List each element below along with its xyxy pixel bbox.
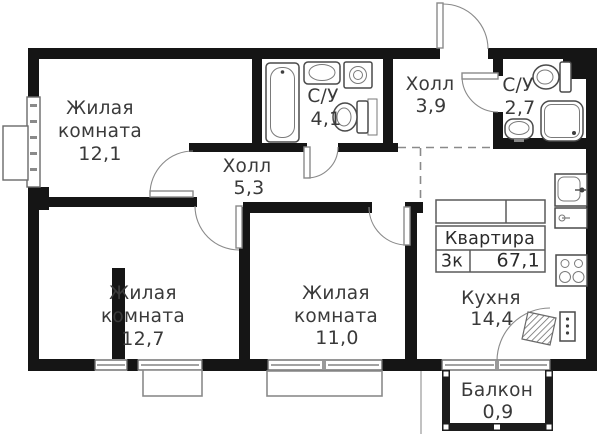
door-bathroom-2 <box>462 73 498 112</box>
room-name: С/У <box>502 75 533 96</box>
room-area: 12,7 <box>121 328 165 350</box>
fridge-icon <box>560 312 575 341</box>
sink-icon <box>505 119 533 142</box>
balcony-door-leaf <box>522 312 556 345</box>
room-name: Жилая <box>66 98 134 119</box>
window-left <box>27 97 40 187</box>
room-area: 14,4 <box>470 308 514 330</box>
door-living-3 <box>369 207 410 245</box>
room-label-living-1: Жилая комната 12,1 <box>58 98 142 165</box>
room-label-bathroom-1: С/У 4,1 <box>307 86 341 130</box>
room-name: комната <box>58 121 142 142</box>
room-name: Кухня <box>461 288 521 309</box>
room-label-bathroom-2: С/У 2,7 <box>502 75 535 119</box>
room-name: Жилая <box>109 283 177 304</box>
door-living-1 <box>150 151 193 197</box>
door-bathroom-1 <box>304 147 338 178</box>
rooms-count-value: 3к <box>441 252 463 272</box>
sink-icon <box>304 62 340 84</box>
floor-plan-drawing: Квартира 3к 67,1 Жилая комната 12,1 С/У … <box>0 0 600 435</box>
kitchen-sink-icon <box>555 174 587 206</box>
room-area: 12,1 <box>78 143 122 165</box>
room-area: 5,3 <box>233 177 264 199</box>
window-sill <box>143 370 202 396</box>
room-name: комната <box>101 306 185 327</box>
floorplan-page: Квартира 3к 67,1 Жилая комната 12,1 С/У … <box>0 0 600 435</box>
kitchen-cabinet-icon <box>555 208 587 228</box>
room-area: 0,9 <box>482 401 513 423</box>
exterior-ledge <box>3 126 28 180</box>
room-name: Холл <box>223 156 272 177</box>
total-area-value: 67,1 <box>496 250 540 272</box>
entrance-door <box>437 3 488 49</box>
room-name: Холл <box>406 74 455 95</box>
room-label-hall-inner: Холл 5,3 <box>223 156 272 199</box>
room-label-hall-entry: Холл 3,9 <box>406 74 455 117</box>
apartment-info-table: Квартира 3к 67,1 <box>436 200 545 272</box>
room-label-kitchen: Кухня 14,4 <box>461 288 521 330</box>
toilet-icon <box>533 62 571 92</box>
room-name: Жилая <box>302 283 370 304</box>
shower-icon <box>541 101 583 141</box>
apartment-type-label: Квартира <box>445 229 535 249</box>
room-area: 11,0 <box>315 327 359 349</box>
room-name: комната <box>294 306 378 327</box>
room-name: С/У <box>307 86 338 107</box>
window-sill <box>267 371 382 396</box>
cooktop-icon <box>556 255 587 286</box>
room-area: 3,9 <box>415 95 446 117</box>
window-bottom-small <box>95 360 127 370</box>
room-name: Балкон <box>461 380 533 401</box>
bathtub-icon <box>266 63 299 142</box>
balcony-door-window-unit <box>442 360 550 370</box>
room-label-living-3: Жилая комната 11,0 <box>294 283 378 349</box>
window-bottom-living3 <box>267 360 382 396</box>
room-area: 2,7 <box>504 97 535 119</box>
room-label-balcony: Балкон 0,9 <box>461 380 533 423</box>
washing-machine-icon <box>344 62 372 88</box>
window-bottom-living2 <box>138 360 202 396</box>
room-area: 4,1 <box>310 108 341 130</box>
door-living-2 <box>195 206 242 250</box>
